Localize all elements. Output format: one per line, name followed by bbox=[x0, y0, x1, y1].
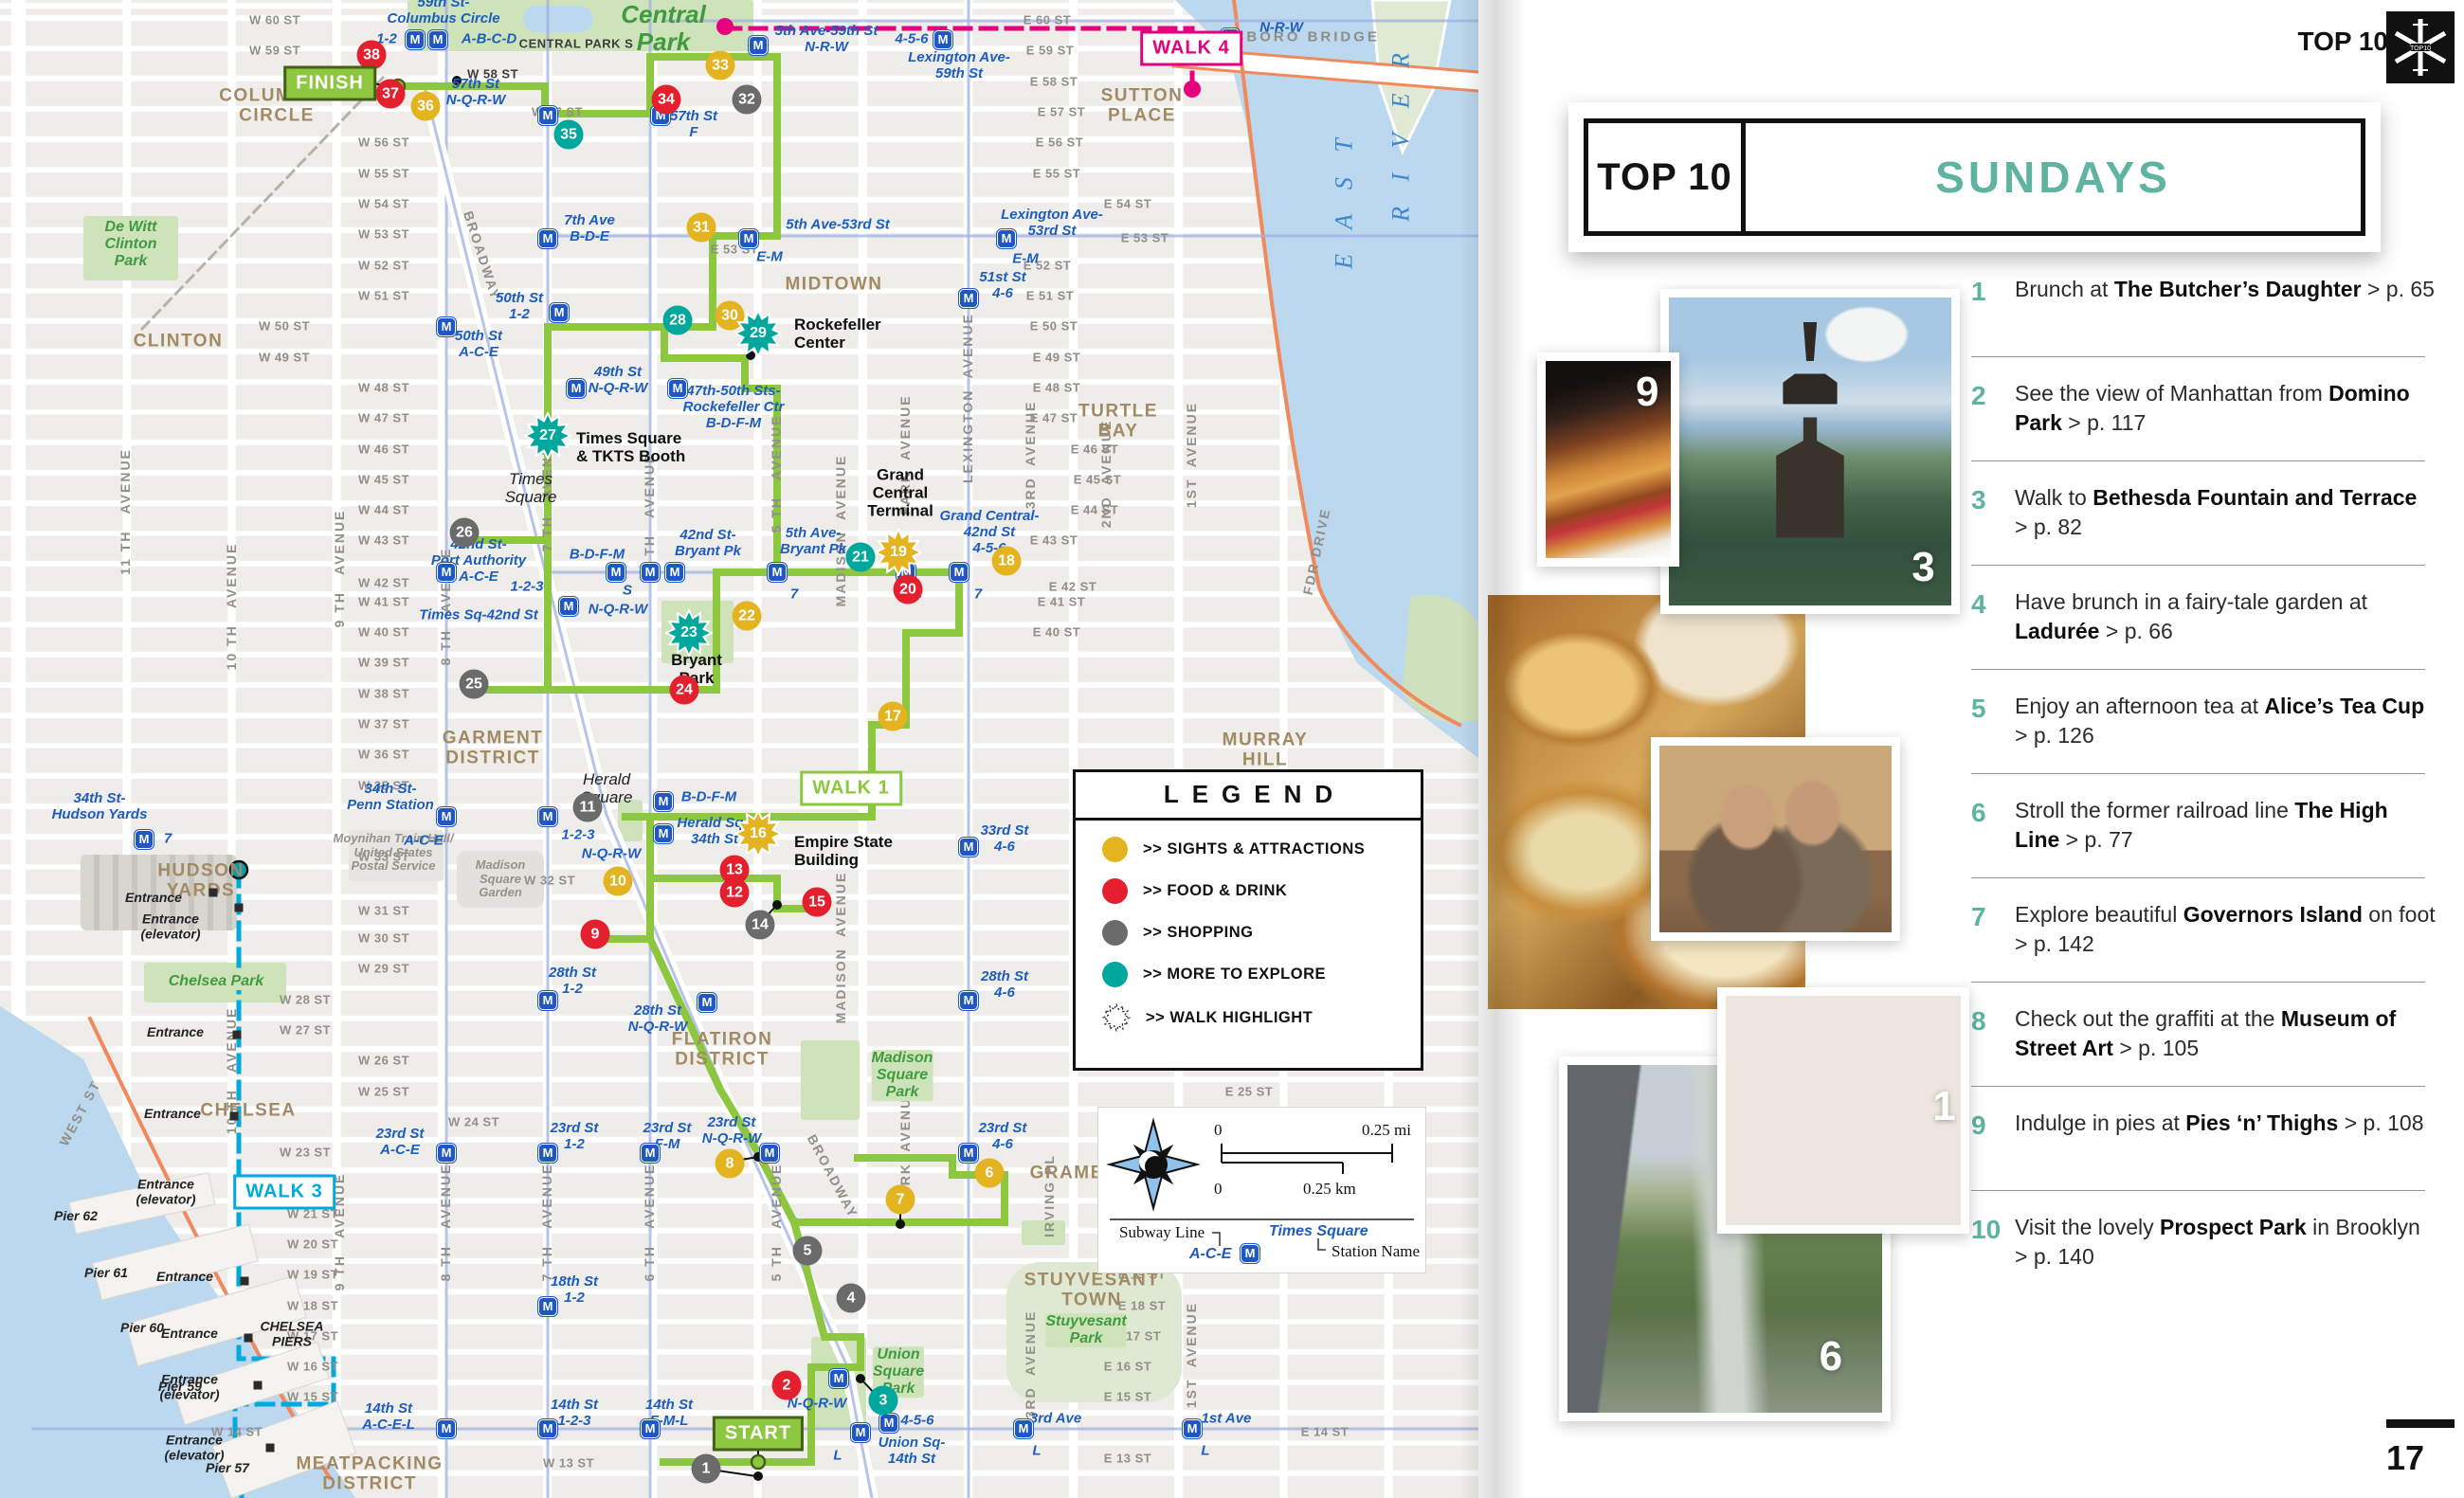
street-label: W 51 ST bbox=[358, 290, 409, 304]
station-label: A-B-C-D bbox=[462, 32, 516, 48]
subway-sample-lines: A-C-E bbox=[1189, 1246, 1231, 1263]
item-separator bbox=[1971, 773, 2425, 774]
station-label: 1st Ave bbox=[1202, 1412, 1252, 1428]
title-top10-box: TOP 10 bbox=[1588, 123, 1746, 231]
street-label: W 23 ST bbox=[280, 1146, 331, 1161]
subway-station-icon: M bbox=[437, 1144, 456, 1163]
station-label: 28th St N-Q-R-W bbox=[628, 1003, 687, 1036]
route-marker-12: 12 bbox=[720, 878, 750, 908]
park-label: Stuyvesant Park bbox=[1045, 1313, 1126, 1347]
legend-dot bbox=[1102, 920, 1128, 946]
page-number-bar bbox=[2386, 1419, 2455, 1428]
scale-mi-zero: 0 bbox=[1214, 1121, 1223, 1140]
list-item-10: 10Visit the lovely Prospect Park in Broo… bbox=[1971, 1213, 2436, 1272]
photo-number-3: 3 bbox=[1911, 544, 1934, 591]
subway-station-icon: M bbox=[567, 379, 586, 398]
station-label: L bbox=[1201, 1444, 1209, 1460]
subway-station-icon: M bbox=[437, 317, 456, 336]
route-marker-4: 4 bbox=[837, 1284, 866, 1313]
item-text: See the view of Manhattan from Domino Pa… bbox=[2015, 379, 2436, 438]
legend-row: >> FOOD & DRINK bbox=[1102, 878, 1421, 904]
route-marker-11: 11 bbox=[573, 793, 603, 822]
neighborhood-label: TURTLE BAY bbox=[1078, 402, 1158, 442]
subway-station-icon: M bbox=[933, 30, 952, 49]
list-item-4: 4Have brunch in a fairy-tale garden at L… bbox=[1971, 587, 2436, 646]
route-marker-14: 14 bbox=[746, 911, 775, 940]
station-label: 23rd St 1-2 bbox=[551, 1121, 599, 1153]
list-item-9: 9Indulge in pies at Pies ‘n’ Thighs > p.… bbox=[1971, 1109, 2436, 1138]
place-label: Times Square bbox=[505, 470, 557, 506]
street-label: W 38 ST bbox=[358, 688, 409, 702]
subway-station-icon: M bbox=[851, 1423, 870, 1442]
subway-station-icon: M bbox=[437, 1419, 456, 1438]
item-separator bbox=[1971, 565, 2425, 566]
route-marker-28: 28 bbox=[663, 306, 693, 335]
poi-label: Times Square & TKTS Booth bbox=[576, 429, 685, 465]
subway-station-icon: M bbox=[950, 563, 969, 582]
pier-label: Pier 62 bbox=[54, 1209, 98, 1224]
walk-badge-walk-1: WALK 1 bbox=[800, 771, 902, 806]
street-label: CENTRAL PARK S bbox=[519, 38, 634, 52]
avenue-label: MADISON AVENUE bbox=[834, 872, 849, 1024]
pies-n-thighs-photo: 9 bbox=[1537, 352, 1679, 567]
route-marker-33: 33 bbox=[706, 51, 735, 81]
street-label: W 29 ST bbox=[358, 963, 409, 977]
street-label: W 47 ST bbox=[358, 412, 409, 426]
street-label: W 48 ST bbox=[358, 382, 409, 396]
station-label: 33rd St 4-6 bbox=[981, 823, 1029, 856]
item-number: 9 bbox=[1971, 1110, 2005, 1141]
legend-row: >> SIGHTS & ATTRACTIONS bbox=[1102, 837, 1421, 862]
bethesda-fountain-photo: 3 bbox=[1660, 289, 1960, 614]
route-point-dot bbox=[896, 1219, 905, 1229]
legend-dot bbox=[1102, 878, 1128, 904]
fountain-silhouette bbox=[1776, 322, 1844, 538]
street-label: W 24 ST bbox=[448, 1116, 499, 1130]
neighborhood-label: GARMENT DISTRICT bbox=[443, 729, 544, 769]
subway-station-icon: M bbox=[768, 563, 787, 582]
pier-label: Pier 57 bbox=[206, 1461, 249, 1476]
avenue-label: 5 TH AVENUE bbox=[770, 415, 785, 533]
avenue-label: 11 TH AVENUE bbox=[118, 448, 134, 575]
item-number: 7 bbox=[1971, 902, 2005, 932]
avenue-label: 3RD AVENUE bbox=[1024, 401, 1039, 510]
station-label: B-D-F-M bbox=[681, 790, 736, 806]
subway-station-icon: M bbox=[1014, 1419, 1033, 1438]
street-label: W 54 ST bbox=[358, 198, 409, 212]
station-label: N-Q-R-W bbox=[582, 847, 641, 863]
station-label: E-M bbox=[756, 250, 783, 266]
street-label: W 42 ST bbox=[358, 577, 409, 591]
avenue-label: 7 TH AVENUE bbox=[540, 1164, 555, 1282]
neighborhood-label: FLATIRON DISTRICT bbox=[672, 1030, 773, 1071]
item-text: Visit the lovely Prospect Park in Brookl… bbox=[2015, 1213, 2436, 1272]
item-separator bbox=[1971, 356, 2425, 357]
entrance-marker bbox=[230, 1112, 239, 1121]
butchers-daughter-photo: 1 bbox=[1717, 987, 1969, 1234]
route-marker-34: 34 bbox=[652, 85, 681, 115]
walk4-endpoint-dot bbox=[716, 18, 734, 35]
subway-m-icon: M bbox=[1241, 1244, 1259, 1263]
list-item-8: 8Check out the graffiti at the Museum of… bbox=[1971, 1004, 2436, 1063]
street-label: E 56 ST bbox=[1036, 136, 1083, 151]
subway-station-icon: M bbox=[437, 563, 456, 582]
subway-station-icon: M bbox=[1183, 1419, 1202, 1438]
entrance-marker bbox=[209, 889, 218, 897]
street-label: W 32 ST bbox=[524, 875, 575, 889]
compass-icon bbox=[1110, 1121, 1197, 1208]
top10-page: TOP 10 TOP10 TOP 10 SUNDAYS 3961 1Brunch… bbox=[1478, 0, 2464, 1498]
legend-title: LEGEND bbox=[1076, 772, 1421, 821]
list-item-2: 2See the view of Manhattan from Domino P… bbox=[1971, 379, 2436, 438]
park-label: De Witt Clinton Park bbox=[104, 219, 156, 270]
walk-badge-walk-4: WALK 4 bbox=[1140, 31, 1242, 66]
scale-km-label: 0.25 km bbox=[1303, 1180, 1356, 1199]
station-label: 5th Ave- Bryant Pk bbox=[780, 526, 846, 558]
route-marker-27: 27 bbox=[524, 412, 571, 460]
list-item-5: 5Enjoy an afternoon tea at Alice’s Tea C… bbox=[1971, 692, 2436, 750]
avenue-label: 8 TH AVENUE bbox=[439, 1164, 454, 1282]
route-marker-21: 21 bbox=[846, 543, 876, 572]
water-label: R I V E R bbox=[1386, 44, 1414, 222]
street-label: E 55 ST bbox=[1033, 168, 1080, 182]
street-label: E 41 ST bbox=[1038, 596, 1085, 610]
subway-station-icon: M bbox=[538, 991, 557, 1010]
street-label: W 41 ST bbox=[358, 596, 409, 610]
route-marker-7: 7 bbox=[886, 1185, 915, 1215]
item-number: 4 bbox=[1971, 589, 2005, 620]
station-label: 7 bbox=[790, 587, 798, 604]
item-text: Brunch at The Butcher’s Daughter > p. 65 bbox=[2015, 275, 2436, 304]
subway-station-icon: M bbox=[428, 30, 447, 49]
station-label: N-R-W bbox=[1259, 21, 1303, 37]
item-text: Indulge in pies at Pies ‘n’ Thighs > p. … bbox=[2015, 1109, 2436, 1138]
subway-station-icon: M bbox=[641, 1419, 660, 1438]
street-label: W 59 ST bbox=[249, 45, 300, 59]
station-label: 4-5-6 bbox=[895, 32, 928, 48]
photo-number-6: 6 bbox=[1820, 1333, 1842, 1381]
street-label: E 60 ST bbox=[1024, 14, 1071, 28]
subway-station-icon: M bbox=[550, 303, 569, 322]
station-label: Union Sq- 14th St bbox=[879, 1435, 946, 1468]
street-label: W 49 ST bbox=[259, 352, 310, 366]
street-label: W 45 ST bbox=[358, 474, 409, 488]
item-text: Stroll the former railroad line The High… bbox=[2015, 796, 2436, 855]
poi-label: Empire State Building bbox=[794, 833, 893, 869]
item-number: 3 bbox=[1971, 485, 2005, 515]
street-label: E 49 ST bbox=[1033, 352, 1080, 366]
list-item-3: 3Walk to Bethesda Fountain and Terrace >… bbox=[1971, 483, 2436, 542]
station-label: 28th St 4-6 bbox=[981, 969, 1028, 1002]
walk4-endpoint-dot bbox=[1184, 81, 1201, 98]
route-marker-8: 8 bbox=[716, 1149, 745, 1179]
subway-station-icon: M bbox=[829, 1369, 848, 1388]
subway-station-icon: M bbox=[959, 1144, 978, 1163]
subway-station-icon: M bbox=[959, 991, 978, 1010]
route-marker-23: 23 bbox=[665, 609, 713, 657]
street-label: W 44 ST bbox=[358, 504, 409, 518]
route-marker-6: 6 bbox=[975, 1159, 1005, 1188]
park-label: Central Park bbox=[621, 1, 706, 56]
street-label: W 15 ST bbox=[287, 1391, 338, 1405]
item-separator bbox=[1971, 669, 2425, 670]
street-label: E 14 ST bbox=[1301, 1426, 1349, 1440]
station-label: 57th St F bbox=[670, 109, 717, 141]
street-label: W 52 ST bbox=[358, 260, 409, 274]
legend-dot bbox=[1102, 962, 1128, 987]
route-marker-24: 24 bbox=[670, 676, 699, 705]
subway-station-icon: M bbox=[406, 30, 425, 49]
street-label: W 60 ST bbox=[249, 14, 300, 28]
walking-map: LEGEND >> SIGHTS & ATTRACTIONS>> FOOD & … bbox=[0, 0, 1478, 1498]
station-label: A-C-E bbox=[404, 834, 444, 850]
street-label: E 54 ST bbox=[1104, 198, 1151, 212]
street-label: E 25 ST bbox=[1225, 1086, 1273, 1100]
street-label: W 27 ST bbox=[280, 1024, 331, 1038]
scale-mi-label: 0.25 mi bbox=[1362, 1121, 1411, 1140]
avenue-label: 1ST AVENUE bbox=[1185, 1302, 1200, 1408]
neighborhood-label: MEATPACKING DISTRICT bbox=[296, 1454, 443, 1495]
list-item-1: 1Brunch at The Butcher’s Daughter > p. 6… bbox=[1971, 275, 2436, 304]
entrance-label: Entrance bbox=[144, 1107, 201, 1122]
station-label: 7 bbox=[164, 832, 172, 848]
alices-tea-cup-photo bbox=[1651, 737, 1900, 941]
station-label: 57th St N-Q-R-W bbox=[446, 77, 505, 109]
entrance-label: Entrance bbox=[161, 1327, 218, 1342]
street-label: E 42 ST bbox=[1049, 581, 1096, 595]
street-label: W 19 ST bbox=[287, 1269, 338, 1283]
route-marker-18: 18 bbox=[992, 547, 1022, 576]
station-label: N-Q-R-W bbox=[589, 603, 647, 619]
entrance-marker bbox=[235, 904, 244, 912]
street-label: W 21 ST bbox=[287, 1208, 338, 1222]
item-number: 10 bbox=[1971, 1215, 2005, 1245]
route-marker-19: 19 bbox=[875, 529, 922, 576]
entrance-label: Entrance bbox=[125, 891, 182, 906]
street-label: W 56 ST bbox=[358, 136, 409, 151]
neighborhood-label: CLINTON bbox=[134, 331, 224, 351]
street-label: W 37 ST bbox=[358, 718, 409, 732]
east-river-park bbox=[1403, 595, 1478, 722]
scale-bars bbox=[1222, 1144, 1392, 1174]
station-label: 23rd St A-C-E bbox=[376, 1127, 425, 1159]
walk-highlight-icon bbox=[1102, 1003, 1131, 1032]
route-terminus-dot bbox=[752, 1455, 765, 1469]
route-marker-37: 37 bbox=[376, 80, 406, 109]
street-label: E 51 ST bbox=[1026, 290, 1074, 304]
street-label: W 50 ST bbox=[259, 320, 310, 334]
subway-station-icon: M bbox=[538, 1297, 557, 1316]
route-marker-3: 3 bbox=[869, 1386, 898, 1416]
poi-label: Grand Central Terminal bbox=[867, 465, 933, 519]
subway-station-icon: M bbox=[538, 229, 557, 248]
neighborhood-label: MIDTOWN bbox=[785, 274, 882, 294]
station-label: 14th St 1-2-3 bbox=[551, 1398, 598, 1430]
station-label: Lexington Ave- 53rd St bbox=[1001, 208, 1103, 240]
subway-station-icon: M bbox=[559, 597, 578, 616]
walk-badge-finish: FINISH bbox=[283, 66, 376, 101]
avenue-label: 5 TH AVENUE bbox=[770, 1164, 785, 1282]
route-marker-15: 15 bbox=[803, 888, 832, 917]
street-label: W 26 ST bbox=[358, 1055, 409, 1069]
subway-station-icon: M bbox=[538, 1419, 557, 1438]
route-marker-2: 2 bbox=[772, 1371, 802, 1400]
station-label: Grand Central- 42nd St 4-5-6 bbox=[939, 509, 1039, 556]
subway-line-label: Subway Line bbox=[1119, 1223, 1205, 1242]
route-marker-10: 10 bbox=[604, 867, 633, 896]
item-number: 2 bbox=[1971, 381, 2005, 411]
route-marker-35: 35 bbox=[554, 120, 584, 150]
neighborhood-label: MURRAY HILL bbox=[1223, 731, 1309, 771]
page-number: 17 bbox=[2386, 1438, 2455, 1478]
route-marker-17: 17 bbox=[879, 702, 908, 731]
poi-label: Rockefeller Center bbox=[794, 316, 881, 352]
subway-station-icon: M bbox=[959, 838, 978, 857]
item-text: Walk to Bethesda Fountain and Terrace > … bbox=[2015, 483, 2436, 542]
station-label: N-Q-R-W bbox=[788, 1397, 846, 1413]
subway-station-icon: M bbox=[135, 830, 154, 849]
station-label: 7 bbox=[974, 587, 982, 604]
route-point-dot bbox=[753, 1471, 763, 1481]
subway-station-icon: M bbox=[959, 289, 978, 308]
list-item-7: 7Explore beautiful Governors Island on f… bbox=[1971, 900, 2436, 959]
route-marker-1: 1 bbox=[692, 1454, 721, 1484]
station-label: 50th St A-C-E bbox=[455, 329, 502, 361]
park-label: Chelsea Park bbox=[169, 973, 264, 990]
legend-row: >> WALK HIGHLIGHT bbox=[1102, 1003, 1421, 1032]
list-item-6: 6Stroll the former railroad line The Hig… bbox=[1971, 796, 2436, 855]
photo-number-1: 1 bbox=[1932, 1083, 1955, 1130]
legend-box: LEGEND >> SIGHTS & ATTRACTIONS>> FOOD & … bbox=[1073, 769, 1423, 1071]
street-label: W 13 ST bbox=[543, 1457, 594, 1471]
subway-station-icon: M bbox=[538, 106, 557, 125]
station-label: 7th Ave B-D-E bbox=[564, 213, 615, 245]
subway-station-icon: M bbox=[654, 792, 673, 811]
entrance-marker bbox=[241, 1277, 249, 1286]
legend-row: >> MORE TO EXPLORE bbox=[1102, 962, 1421, 987]
subway-station-icon: M bbox=[698, 993, 716, 1012]
station-name-label: Station Name bbox=[1332, 1242, 1420, 1261]
station-label: 1-2-3 bbox=[510, 580, 543, 596]
station-label: 5th Ave-59th St N-R-W bbox=[775, 24, 879, 56]
subway-station-icon: M bbox=[654, 824, 673, 843]
entrance-label: Entrance bbox=[156, 1270, 213, 1285]
station-label: E-M bbox=[1012, 252, 1039, 268]
street-label: E 16 ST bbox=[1104, 1361, 1151, 1375]
station-label: 34th St- Penn Station bbox=[347, 782, 434, 814]
street-label: W 16 ST bbox=[287, 1361, 338, 1375]
entrance-marker bbox=[266, 1444, 275, 1453]
item-number: 1 bbox=[1971, 277, 2005, 307]
corner-brand: TOP 10 bbox=[2279, 27, 2388, 57]
street-label: E 59 ST bbox=[1026, 45, 1074, 59]
item-number: 5 bbox=[1971, 694, 2005, 724]
entrance-label: Entrance bbox=[147, 1025, 204, 1040]
subway-station-icon: M bbox=[641, 563, 660, 582]
avenue-label: 1ST AVENUE bbox=[1185, 402, 1200, 508]
street-label: E 15 ST bbox=[1104, 1391, 1151, 1405]
route-point-dot bbox=[856, 1374, 865, 1383]
avenue-label: 10 TH AVENUE bbox=[225, 543, 240, 671]
entrance-label: Entrance (elevator) bbox=[140, 911, 200, 941]
station-label: L bbox=[833, 1449, 842, 1465]
item-text: Explore beautiful Governors Island on fo… bbox=[2015, 900, 2436, 959]
station-label: 3rd Ave bbox=[1030, 1412, 1081, 1428]
pier-label: CHELSEA PIERS bbox=[261, 1319, 324, 1348]
street-label: E 13 ST bbox=[1104, 1453, 1151, 1467]
station-label: 5th Ave-53rd St bbox=[786, 218, 889, 234]
street-label: E 48 ST bbox=[1033, 382, 1080, 396]
subway-sample-station: Times Square bbox=[1269, 1223, 1368, 1240]
scale-km-zero: 0 bbox=[1214, 1180, 1223, 1199]
station-label: 18th St 1-2 bbox=[551, 1274, 598, 1307]
station-label: 23rd St 4-6 bbox=[979, 1121, 1027, 1153]
avenue-label: 9 TH AVENUE bbox=[333, 510, 348, 628]
walk-badge-start: START bbox=[713, 1417, 804, 1452]
subway-station-icon: M bbox=[437, 807, 456, 826]
route-marker-32: 32 bbox=[733, 85, 762, 115]
street-label: E 53 ST bbox=[1121, 232, 1169, 246]
item-separator bbox=[1971, 982, 2425, 983]
street-label: W 28 ST bbox=[280, 994, 331, 1008]
entrance-label: Entrance (elevator) bbox=[136, 1177, 195, 1206]
subway-station-icon: M bbox=[538, 1144, 557, 1163]
route-point-dot bbox=[772, 900, 782, 910]
legend-dot bbox=[1102, 837, 1128, 862]
route-marker-22: 22 bbox=[733, 602, 762, 631]
station-label: 1-2-3 bbox=[561, 828, 594, 844]
item-text: Check out the graffiti at the Museum of … bbox=[2015, 1004, 2436, 1063]
item-separator bbox=[1971, 460, 2425, 461]
street-label: W 53 ST bbox=[358, 228, 409, 243]
street-label: W 40 ST bbox=[358, 626, 409, 641]
neighborhood-label: SUTTON PLACE bbox=[1101, 86, 1184, 127]
item-text: Enjoy an afternoon tea at Alice’s Tea Cu… bbox=[2015, 692, 2436, 750]
item-separator bbox=[1971, 877, 2425, 878]
station-label: 59th St- Columbus Circle bbox=[387, 0, 499, 27]
subway-station-icon: M bbox=[665, 563, 684, 582]
route-marker-5: 5 bbox=[793, 1236, 823, 1266]
street-label: E 40 ST bbox=[1033, 626, 1080, 641]
avenue-label: 6 TH AVENUE bbox=[643, 1164, 658, 1282]
station-label: B-D-F-M bbox=[570, 548, 625, 564]
item-number: 6 bbox=[1971, 798, 2005, 828]
route-marker-26: 26 bbox=[450, 518, 480, 548]
snowflake-icon: TOP10 bbox=[2386, 11, 2455, 83]
route-marker-20: 20 bbox=[894, 575, 923, 605]
street-label: E 58 ST bbox=[1030, 76, 1078, 90]
station-label: 50th St 1-2 bbox=[496, 291, 543, 323]
route-marker-25: 25 bbox=[460, 670, 489, 699]
entrance-marker bbox=[254, 1381, 263, 1390]
station-label: 23rd St N-Q-R-W bbox=[702, 1115, 761, 1147]
avenue-label: 3RD AVENUE bbox=[1024, 1310, 1039, 1419]
street-label: W 18 ST bbox=[287, 1300, 338, 1314]
subway-station-icon: M bbox=[538, 807, 557, 826]
entrance-marker bbox=[245, 1334, 253, 1343]
subway-station-icon: M bbox=[749, 36, 768, 55]
station-label: 51st St 4-6 bbox=[979, 270, 1025, 302]
subway-station-icon: M bbox=[641, 1144, 660, 1163]
station-label: L bbox=[1032, 1444, 1041, 1460]
subway-station-icon: M bbox=[739, 229, 758, 248]
station-label: 14th St A-C-E-L bbox=[362, 1401, 415, 1434]
route-marker-36: 36 bbox=[411, 92, 441, 121]
marker-connector-line bbox=[717, 1471, 756, 1476]
entrance-label: Entrance (elevator) bbox=[164, 1433, 224, 1462]
item-text: Have brunch in a fairy-tale garden at La… bbox=[2015, 587, 2436, 646]
park-label: Madison Square Park bbox=[872, 1050, 933, 1101]
